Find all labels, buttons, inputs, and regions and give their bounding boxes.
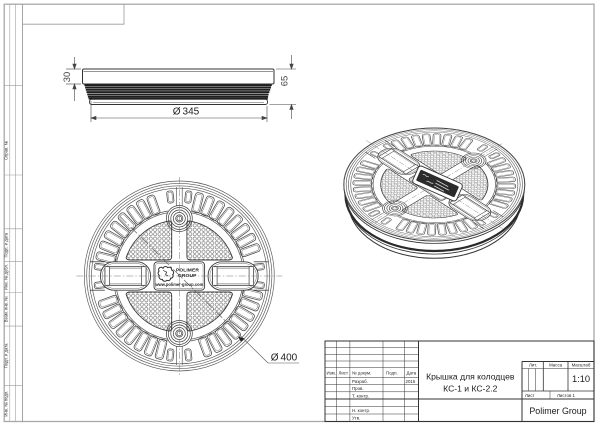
svg-text:Polimer Group: Polimer Group [529, 406, 586, 416]
svg-text:Изм.: Изм. [327, 370, 336, 375]
svg-text:Дата: Дата [407, 370, 417, 375]
svg-text:65: 65 [279, 76, 290, 86]
svg-text:Лит.: Лит. [529, 363, 537, 368]
svg-text:GROUP: GROUP [178, 273, 197, 279]
svg-text:Утв.: Утв. [352, 416, 360, 421]
svg-text:Подп. и дата: Подп. и дата [4, 343, 9, 368]
svg-text:Лист: Лист [339, 370, 349, 375]
svg-text:Н. контр.: Н. контр. [352, 408, 370, 413]
svg-text:Масштаб: Масштаб [572, 363, 591, 368]
svg-text:Подп.: Подп. [386, 370, 398, 375]
svg-text:№ докум.: № докум. [352, 370, 371, 375]
svg-text:30: 30 [61, 72, 72, 82]
svg-text:Инв. № дубл.: Инв. № дубл. [4, 264, 9, 290]
svg-text:2015: 2015 [406, 379, 416, 384]
svg-text:Ø 345: Ø 345 [173, 107, 200, 118]
svg-text:Инв. № подл.: Инв. № подл. [4, 391, 9, 417]
svg-text:Пров.: Пров. [352, 386, 364, 391]
svg-text:Ø 400: Ø 400 [271, 353, 298, 364]
svg-text:КС-1 и КС-2.2: КС-1 и КС-2.2 [443, 384, 497, 394]
svg-text:POLIMER: POLIMER [176, 268, 199, 274]
svg-text:Т. контр.: Т. контр. [352, 393, 369, 398]
svg-text:Листов 1: Листов 1 [557, 393, 575, 398]
svg-text:Разраб.: Разраб. [352, 379, 368, 384]
svg-text:1:10: 1:10 [572, 374, 590, 384]
svg-text:Взам. инв. №: Взам. инв. № [4, 296, 9, 322]
svg-text:Подп. и дата: Подп. и дата [4, 232, 9, 257]
svg-text:Масса: Масса [549, 363, 563, 368]
svg-text:www.polimer-group.com: www.polimer-group.com [154, 282, 203, 287]
svg-text:Справ. №: Справ. № [4, 140, 9, 160]
svg-text:Лист: Лист [525, 393, 535, 398]
svg-text:Крышка для колодцев: Крышка для колодцев [426, 372, 515, 382]
